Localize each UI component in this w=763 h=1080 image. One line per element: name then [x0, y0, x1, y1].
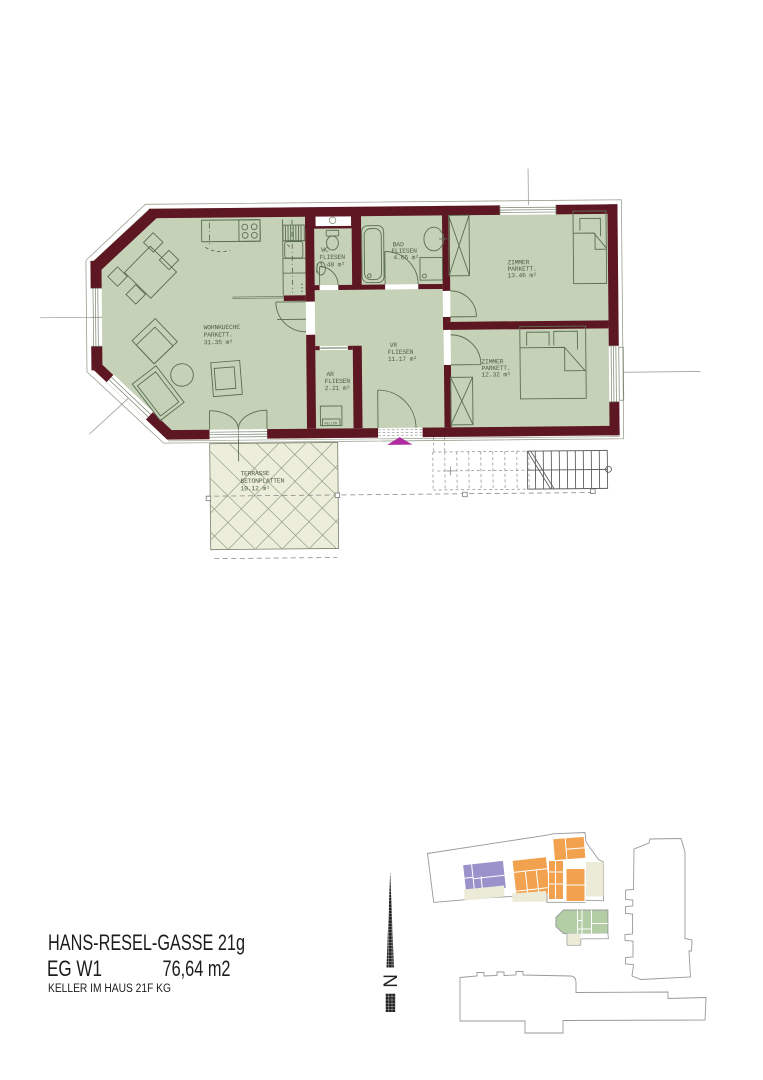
svg-text:2.21 m²: 2.21 m²: [325, 385, 351, 392]
svg-text:31.35 m²: 31.35 m²: [204, 339, 233, 346]
svg-text:N: N: [379, 974, 400, 988]
svg-text:76,64 m2: 76,64 m2: [163, 956, 231, 981]
svg-text:BETONPLATTEN: BETONPLATTEN: [241, 477, 285, 484]
svg-text:13.46 m²: 13.46 m²: [508, 272, 537, 279]
svg-text:10.12 m²: 10.12 m²: [241, 485, 270, 492]
svg-text:HANS-RESEL-GASSE 21g: HANS-RESEL-GASSE 21g: [48, 930, 245, 955]
svg-text:KELLER: KELLER: [324, 422, 338, 426]
svg-text:AR: AR: [326, 371, 334, 378]
svg-text:EG W1: EG W1: [47, 956, 102, 981]
svg-text:1.48 m²: 1.48 m²: [319, 261, 345, 268]
svg-text:VR: VR: [390, 342, 398, 349]
svg-text:4.65 m²: 4.65 m²: [393, 254, 419, 261]
svg-text:PARKETT.: PARKETT.: [204, 331, 233, 338]
svg-text:12.32 m²: 12.32 m²: [481, 371, 510, 378]
svg-text:KELLER IM HAUS 21F KG: KELLER IM HAUS 21F KG: [48, 981, 171, 995]
svg-text:TERRASSE: TERRASSE: [240, 470, 270, 477]
svg-text:FLIESEN: FLIESEN: [319, 254, 345, 261]
svg-text:11.17 m²: 11.17 m²: [388, 356, 417, 363]
svg-text:WC: WC: [321, 247, 329, 254]
svg-text:WOHNKUECHE: WOHNKUECHE: [204, 324, 241, 331]
